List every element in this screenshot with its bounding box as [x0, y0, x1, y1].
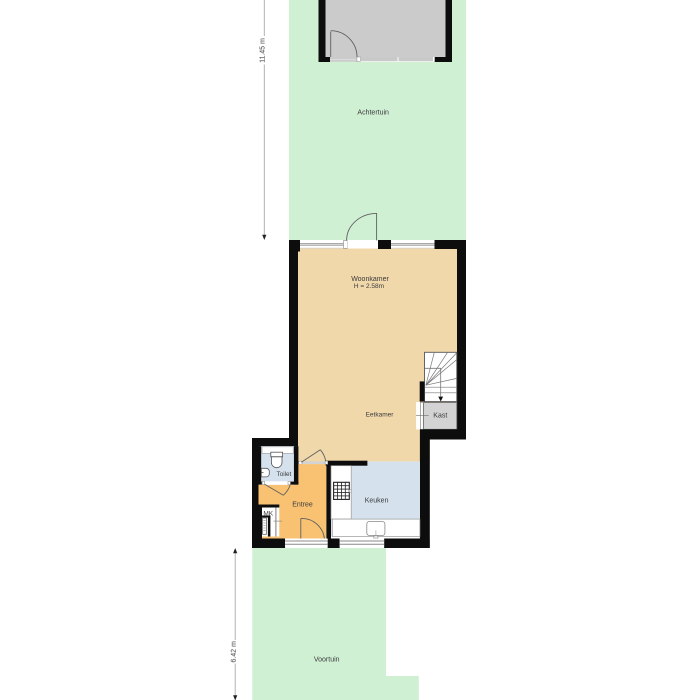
svg-text:Achtertuin: Achtertuin	[357, 110, 389, 117]
svg-text:Voortuin: Voortuin	[314, 656, 340, 663]
svg-text:Toilet: Toilet	[277, 471, 292, 478]
svg-text:Eetkamer: Eetkamer	[366, 412, 395, 419]
svg-text:6.42 m: 6.42 m	[231, 641, 238, 663]
svg-text:11.45 m: 11.45 m	[260, 38, 267, 63]
svg-text:Kast: Kast	[433, 412, 447, 419]
svg-text:Woonkamer: Woonkamer	[351, 276, 389, 283]
svg-text:MK: MK	[263, 511, 273, 518]
svg-text:H = 2.58m: H = 2.58m	[354, 283, 384, 290]
svg-text:Keuken: Keuken	[365, 497, 389, 504]
svg-text:Entree: Entree	[292, 501, 313, 508]
